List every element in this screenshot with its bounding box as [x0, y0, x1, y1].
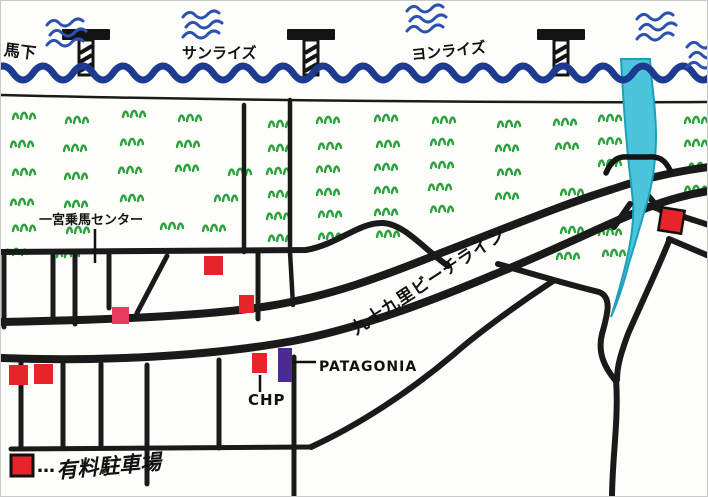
grass-tuft — [599, 138, 621, 144]
grass-tuft — [556, 143, 578, 149]
grass-tuft — [65, 201, 87, 207]
grass-tuft — [203, 225, 225, 231]
grass-tuft — [269, 235, 291, 241]
label-beach-sunrise: サンライズ — [182, 44, 257, 62]
grass-tuft — [267, 168, 289, 174]
parking-building-red — [239, 295, 254, 313]
parking-building-red — [34, 364, 53, 384]
grass-tuft — [685, 117, 707, 123]
water-squiggle-icon — [410, 15, 446, 22]
grass-tuft — [319, 143, 341, 149]
northeast-down-road — [617, 241, 669, 380]
map-canvas: 馬下 サンライズ ヨンライズ 一宮乗馬センター 九十九里ビーチライン PATAG… — [0, 0, 708, 497]
grass-tuft — [269, 121, 291, 127]
label-beach-yonrise: ヨンライズ — [411, 38, 487, 64]
label-place-top-left: 馬下 — [3, 40, 37, 63]
grass-tuft — [496, 193, 518, 199]
grass-tuft — [319, 211, 341, 217]
grass-tuft — [561, 189, 583, 195]
grass-tuft — [603, 250, 625, 256]
grass-tuft — [269, 145, 291, 151]
water-squiggle-icon — [687, 41, 708, 48]
grass-tuft — [375, 209, 397, 215]
grass-tuft — [123, 111, 145, 117]
grass-tuft — [429, 184, 451, 190]
grass-tuft — [496, 145, 518, 151]
grass-tuft — [433, 117, 455, 123]
south-horizontal-road — [11, 447, 311, 449]
water-squiggle-icon — [407, 5, 443, 12]
grass-field-layer — [5, 111, 708, 259]
grass-tuft — [375, 115, 397, 121]
grass-tuft — [267, 213, 289, 219]
field-road-east — [290, 100, 293, 305]
building-pink — [112, 307, 129, 324]
coastline-wave — [1, 66, 708, 80]
grass-tuft — [498, 169, 520, 175]
grass-tuft — [64, 145, 86, 151]
grass-tuft — [65, 173, 87, 179]
grass-tuft — [375, 164, 397, 170]
grass-tuft — [177, 141, 199, 147]
grass-tuft — [561, 227, 583, 233]
grass-tuft — [317, 189, 339, 195]
south-east-road — [612, 379, 617, 497]
pier-cap-icon — [537, 29, 585, 40]
grass-tuft — [377, 231, 399, 237]
grass-tuft — [121, 195, 143, 201]
grass-tuft — [179, 115, 201, 121]
grass-tuft — [269, 191, 291, 197]
grass-tuft — [176, 165, 198, 171]
building-layer — [9, 207, 685, 476]
water-squiggle-icon — [637, 33, 673, 40]
grass-tuft — [375, 187, 397, 193]
grass-tuft — [377, 141, 399, 147]
grass-tuft — [13, 169, 35, 175]
grass-tuft — [557, 253, 579, 259]
coast-road — [1, 95, 708, 102]
grass-tuft — [431, 139, 453, 145]
legend-dots: … — [37, 456, 55, 477]
grass-tuft — [13, 113, 35, 119]
pier-cap-icon — [287, 29, 335, 40]
grass-tuft — [229, 169, 251, 175]
grass-tuft — [554, 119, 576, 125]
parking-building-red — [658, 207, 684, 233]
grass-tuft — [11, 199, 33, 205]
water-squiggle-icon — [637, 13, 673, 20]
water-squiggle-icon — [183, 11, 219, 18]
grass-tuft — [685, 140, 707, 146]
road-network — [1, 95, 708, 497]
sea-squiggle-layer — [47, 5, 708, 68]
grass-tuft — [11, 141, 33, 147]
grass-tuft — [66, 117, 88, 123]
grass-tuft — [121, 139, 143, 145]
grid-diagonal-street — [137, 256, 167, 313]
water-squiggle-icon — [183, 31, 219, 38]
branch-road — [498, 264, 615, 380]
parking-building-red — [204, 256, 223, 275]
grass-tuft — [431, 162, 453, 168]
water-squiggle-icon — [47, 19, 83, 26]
parking-building-red — [252, 353, 267, 373]
grass-tuft — [215, 195, 237, 201]
water-squiggle-icon — [640, 23, 676, 30]
label-riding-center: 一宮乗馬センター — [39, 212, 143, 228]
water-squiggle-icon — [690, 51, 708, 58]
parking-building-red — [9, 365, 28, 385]
grass-tuft — [119, 167, 141, 173]
patagonia-building — [278, 348, 292, 382]
grass-tuft — [599, 115, 621, 121]
grass-tuft — [498, 121, 520, 127]
water-squiggle-icon — [407, 25, 443, 32]
grass-tuft — [13, 225, 35, 231]
water-squiggle-icon — [186, 21, 222, 28]
map-drawing: 馬下 サンライズ ヨンライズ 一宮乗馬センター 九十九里ビーチライン PATAG… — [1, 1, 708, 497]
grass-tuft — [317, 166, 339, 172]
grass-tuft — [317, 117, 339, 123]
legend-red-square — [11, 455, 33, 476]
label-patagonia: PATAGONIA — [319, 359, 417, 375]
label-chp: CHP — [248, 391, 286, 409]
grass-tuft — [161, 223, 183, 229]
grass-tuft — [431, 206, 453, 212]
